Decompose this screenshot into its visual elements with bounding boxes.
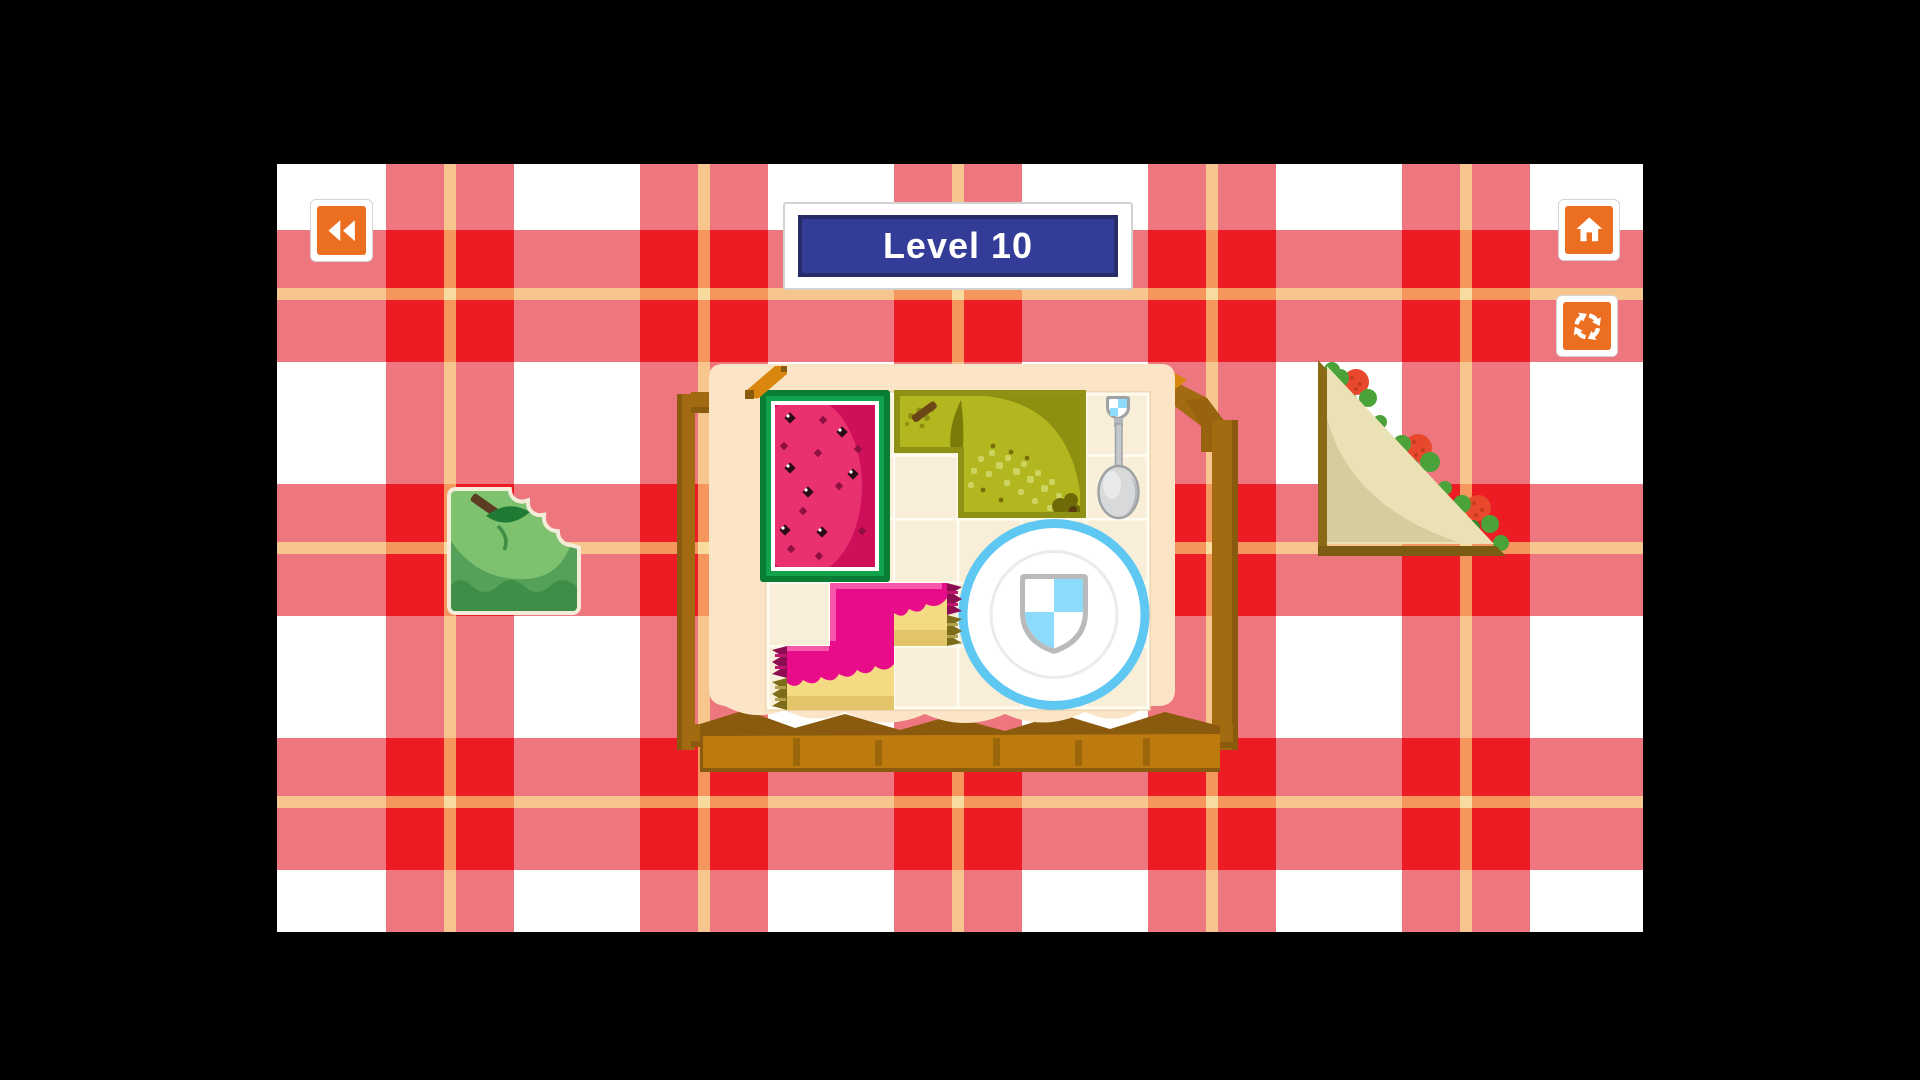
level-label: Level 10 xyxy=(883,225,1033,267)
screenshot-root: { "meta": { "description": "Picnic-theme… xyxy=(0,0,1920,1080)
game-area: Level 10 xyxy=(277,164,1643,932)
apple-piece[interactable] xyxy=(446,486,582,616)
back-button[interactable] xyxy=(310,199,373,262)
picnic-basket-board xyxy=(675,360,1245,780)
sandwich-crust-bottom xyxy=(1318,546,1506,556)
rewind-icon xyxy=(325,214,358,247)
restart-icon xyxy=(1571,310,1604,343)
sandwich-crust-left xyxy=(1318,360,1327,546)
home-button[interactable] xyxy=(1558,199,1620,261)
restart-button[interactable] xyxy=(1556,295,1618,357)
level-banner: Level 10 xyxy=(783,202,1133,290)
sandwich-piece[interactable] xyxy=(1310,356,1510,558)
watermelon-piece[interactable] xyxy=(746,390,890,582)
home-icon xyxy=(1573,214,1606,247)
plate-with-shield xyxy=(963,524,1145,706)
